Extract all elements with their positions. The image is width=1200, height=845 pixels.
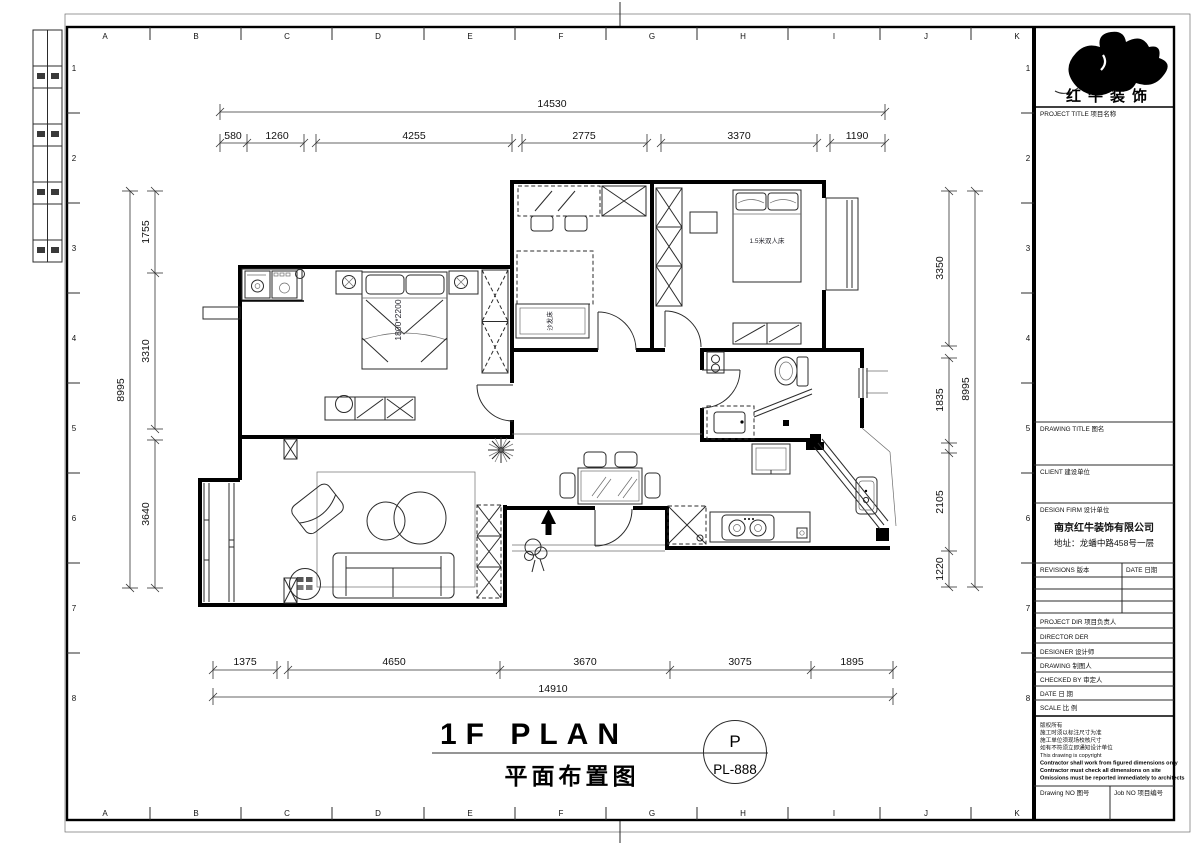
ceiling-lamp-icon bbox=[455, 276, 468, 289]
ceiling-lamp-icon bbox=[343, 276, 356, 289]
grid-number: 6 bbox=[72, 514, 77, 523]
dim-value: 14910 bbox=[538, 683, 567, 695]
dim-value: 3350 bbox=[934, 256, 946, 280]
grid-number: 3 bbox=[1026, 244, 1031, 253]
revisions-table: REVISIONS 版本 DATE 日期 bbox=[1034, 563, 1174, 613]
grid-number: 5 bbox=[1026, 424, 1031, 433]
washbasin-icon bbox=[707, 406, 754, 439]
chair bbox=[560, 473, 575, 498]
double-bed bbox=[362, 272, 447, 369]
grid-number: 4 bbox=[72, 334, 77, 343]
plan-title: 1F PLAN 平面布置图 P PL-888 bbox=[432, 718, 768, 789]
field-date: DATE 日 期 bbox=[1040, 690, 1073, 698]
dim-value: 3640 bbox=[140, 502, 152, 526]
grid-letter: G bbox=[649, 32, 655, 41]
armchair bbox=[289, 481, 346, 536]
field-revisions: REVISIONS 版本 bbox=[1040, 565, 1090, 574]
field-scale: SCALE 比 例 bbox=[1040, 703, 1077, 712]
floor-drain-icon bbox=[783, 420, 789, 426]
living-room bbox=[284, 472, 501, 603]
bed-size-label: 1800*2200 bbox=[393, 299, 403, 340]
note-line: 施工时须以标注尺寸为准 bbox=[1040, 729, 1102, 737]
grid-number: 7 bbox=[1026, 604, 1031, 613]
company-logo-icon bbox=[1055, 32, 1168, 96]
field-drawing-no: Drawing NO 图号 bbox=[1040, 789, 1089, 797]
fridge-icon bbox=[752, 444, 790, 474]
note-line: 版权所有 bbox=[1040, 721, 1063, 729]
field-director: DIRECTOR DER bbox=[1040, 634, 1089, 641]
grid-letter: H bbox=[740, 809, 746, 818]
field-revisions-date: DATE 日期 bbox=[1126, 566, 1157, 574]
grid-letter: I bbox=[833, 32, 835, 41]
grid-letter: J bbox=[924, 809, 928, 818]
company-name: 红牛装饰 bbox=[1066, 87, 1154, 105]
bathroom bbox=[707, 352, 812, 439]
low-cabinet bbox=[733, 323, 801, 344]
rug bbox=[317, 472, 475, 587]
dimension-bottom: 1375 4650 3670 3075 1895 14910 bbox=[209, 656, 897, 705]
bed-1500 bbox=[733, 190, 801, 282]
grid-letter: E bbox=[467, 809, 472, 818]
grid-letter: F bbox=[559, 809, 564, 818]
nightstand bbox=[690, 212, 717, 233]
kitchen bbox=[668, 444, 877, 544]
note-line: Omissions must be reported immediately t… bbox=[1040, 776, 1185, 782]
sink-icon bbox=[856, 477, 877, 514]
note-line: 如有不符须立即通知设计单位 bbox=[1040, 744, 1113, 752]
field-job-no: Job NO 项目编号 bbox=[1114, 788, 1163, 797]
grid-letter: C bbox=[284, 809, 290, 818]
dim-value: 8995 bbox=[960, 377, 972, 401]
note-line: Contractor shall work from figured dimen… bbox=[1040, 761, 1179, 767]
plan-title-cn: 平面布置图 bbox=[505, 763, 640, 789]
design-firm-address: 地址：龙蟠中路458号一层 bbox=[1054, 537, 1155, 548]
tatami-area bbox=[517, 251, 593, 304]
dimension-left: 8995 1755 3310 3640 bbox=[115, 187, 163, 592]
dim-value: 3670 bbox=[573, 656, 597, 668]
sofa-bed-label: 沙发床 bbox=[545, 311, 554, 331]
grid-number: 4 bbox=[1026, 334, 1031, 343]
nightstand bbox=[336, 271, 362, 294]
chair bbox=[531, 216, 553, 231]
dimension-right: 3350 1835 2105 1220 8995 bbox=[934, 187, 983, 591]
dining-table bbox=[578, 468, 642, 504]
grid-letter: K bbox=[1014, 809, 1020, 818]
stamp-letter: P bbox=[729, 732, 740, 751]
grid-letter: B bbox=[193, 32, 198, 41]
grid-letter: A bbox=[102, 32, 108, 41]
grid-number: 6 bbox=[1026, 514, 1031, 523]
dim-value: 1375 bbox=[233, 656, 257, 668]
signature-strip bbox=[33, 30, 62, 262]
grid-letter: J bbox=[924, 32, 928, 41]
grid-letter: G bbox=[649, 809, 655, 818]
field-client: CLIENT 建设单位 bbox=[1040, 467, 1091, 476]
cabinet-hatch bbox=[602, 186, 646, 216]
dining-area bbox=[488, 437, 660, 572]
grid-number: 2 bbox=[1026, 154, 1031, 163]
entry-plant-icon bbox=[525, 539, 548, 572]
grid-number: 1 bbox=[1026, 64, 1031, 73]
wardrobe bbox=[482, 270, 508, 373]
dim-value: 3075 bbox=[728, 656, 752, 668]
drawing-sheet: A B C D E F G H I J K A B C D E F G H I … bbox=[0, 0, 1200, 845]
dim-value: 1220 bbox=[934, 557, 946, 581]
counter-corner bbox=[797, 528, 807, 538]
nightstand bbox=[449, 271, 478, 294]
grid-letter: D bbox=[375, 32, 381, 41]
grid-letter: D bbox=[375, 809, 381, 818]
dim-value: 3310 bbox=[140, 339, 152, 363]
dim-value: 1190 bbox=[846, 130, 869, 142]
dim-value: 580 bbox=[224, 130, 242, 142]
shower-screen bbox=[754, 389, 812, 417]
counter bbox=[710, 512, 810, 542]
dim-value: 3370 bbox=[727, 130, 751, 142]
dim-value: 4255 bbox=[402, 130, 426, 142]
study-room: 沙发床 bbox=[516, 186, 646, 338]
grid-letter: E bbox=[467, 32, 472, 41]
dim-value: 1835 bbox=[934, 388, 946, 412]
dim-value: 8995 bbox=[115, 378, 127, 402]
grid-letter: A bbox=[102, 809, 108, 818]
floor-plan-canvas: A B C D E F G H I J K A B C D E F G H I … bbox=[0, 0, 1200, 845]
dim-value: 1260 bbox=[265, 130, 289, 142]
chair bbox=[645, 473, 660, 498]
field-project-title: PROJECT TITLE 项目名称 bbox=[1040, 109, 1117, 118]
plant-icon bbox=[488, 437, 514, 463]
grid-letter: H bbox=[740, 32, 746, 41]
field-drawing: DRAWING 制图人 bbox=[1040, 661, 1092, 670]
chair bbox=[615, 452, 637, 467]
note-line: 施工单位须现场校核尺寸 bbox=[1040, 736, 1102, 744]
sheet-border bbox=[65, 2, 1190, 843]
note-line: This drawing is copyright bbox=[1040, 753, 1102, 759]
grid-number: 5 bbox=[72, 424, 77, 433]
wall-end-hatch bbox=[284, 578, 297, 603]
dim-value: 14530 bbox=[537, 98, 566, 110]
side-cabinet bbox=[477, 505, 501, 598]
design-firm-name: 南京红牛装饰有限公司 bbox=[1054, 521, 1154, 534]
walls bbox=[198, 180, 890, 607]
copyright-notes: 版权所有 施工时须以标注尺寸为准 施工单位须现场校核尺寸 如有不符须立即通知设计… bbox=[1040, 721, 1185, 782]
stamp-number: PL-888 bbox=[713, 762, 757, 777]
dimension-top: 14530 580 1260 4255 2775 3370 1190 bbox=[216, 98, 889, 152]
grid-number: 1 bbox=[72, 64, 77, 73]
entry-arrow-icon bbox=[541, 509, 556, 535]
dim-value: 1895 bbox=[840, 656, 864, 668]
master-bedroom: 1800*2200 bbox=[240, 269, 508, 459]
grid-ruler: A B C D E F G H I J K A B C D E F G H I … bbox=[67, 27, 1034, 820]
field-designer: DESIGNER 设计师 bbox=[1040, 647, 1095, 656]
grid-letter: K bbox=[1014, 32, 1020, 41]
sofa bbox=[333, 553, 454, 598]
second-bedroom: 1.5米双人床 bbox=[656, 188, 801, 344]
drawing-number-stamp: P PL-888 bbox=[704, 721, 767, 784]
grid-number: 7 bbox=[72, 604, 77, 613]
dryer-icon bbox=[272, 271, 297, 298]
shoe-cabinet bbox=[668, 506, 706, 544]
grid-number: 3 bbox=[72, 244, 77, 253]
grid-letter: C bbox=[284, 32, 290, 41]
field-design-firm: DESIGN FIRM 设计单位 bbox=[1040, 505, 1110, 514]
grid-number: 8 bbox=[72, 694, 77, 703]
washer-icon bbox=[245, 271, 270, 298]
field-drawing-title: DRAWING TITLE 图名 bbox=[1040, 424, 1104, 433]
dresser bbox=[325, 396, 415, 421]
dim-value: 1755 bbox=[140, 220, 152, 244]
desk bbox=[518, 186, 600, 216]
grid-number: 2 bbox=[72, 154, 77, 163]
chair bbox=[584, 452, 606, 467]
grid-letter: I bbox=[833, 809, 835, 818]
title-block: 红牛装饰 PROJECT TITLE 项目名称 DRAWING TITLE 图名… bbox=[1034, 32, 1185, 820]
grid-number: 8 bbox=[1026, 694, 1031, 703]
windows bbox=[204, 198, 896, 602]
coffee-table bbox=[394, 492, 446, 544]
field-project-dir: PROJECT DIR 项目负责人 bbox=[1040, 617, 1117, 626]
field-checked-by: CHECKED BY 审定人 bbox=[1040, 675, 1103, 684]
dim-value: 2775 bbox=[572, 130, 596, 142]
grid-letter: F bbox=[559, 32, 564, 41]
toilet-icon bbox=[775, 357, 808, 386]
grid-letter: B bbox=[193, 809, 198, 818]
dim-value: 4650 bbox=[382, 656, 406, 668]
stove-icon bbox=[722, 515, 774, 540]
dim-value: 2105 bbox=[934, 490, 946, 514]
wall-end-hatch bbox=[284, 439, 297, 459]
chair bbox=[565, 216, 587, 231]
second-bed-label: 1.5米双人床 bbox=[749, 236, 785, 245]
wardrobe bbox=[656, 188, 682, 306]
plan-title-en: 1F PLAN bbox=[440, 718, 628, 751]
note-line: Contractor must check all dimensions on … bbox=[1040, 768, 1161, 774]
